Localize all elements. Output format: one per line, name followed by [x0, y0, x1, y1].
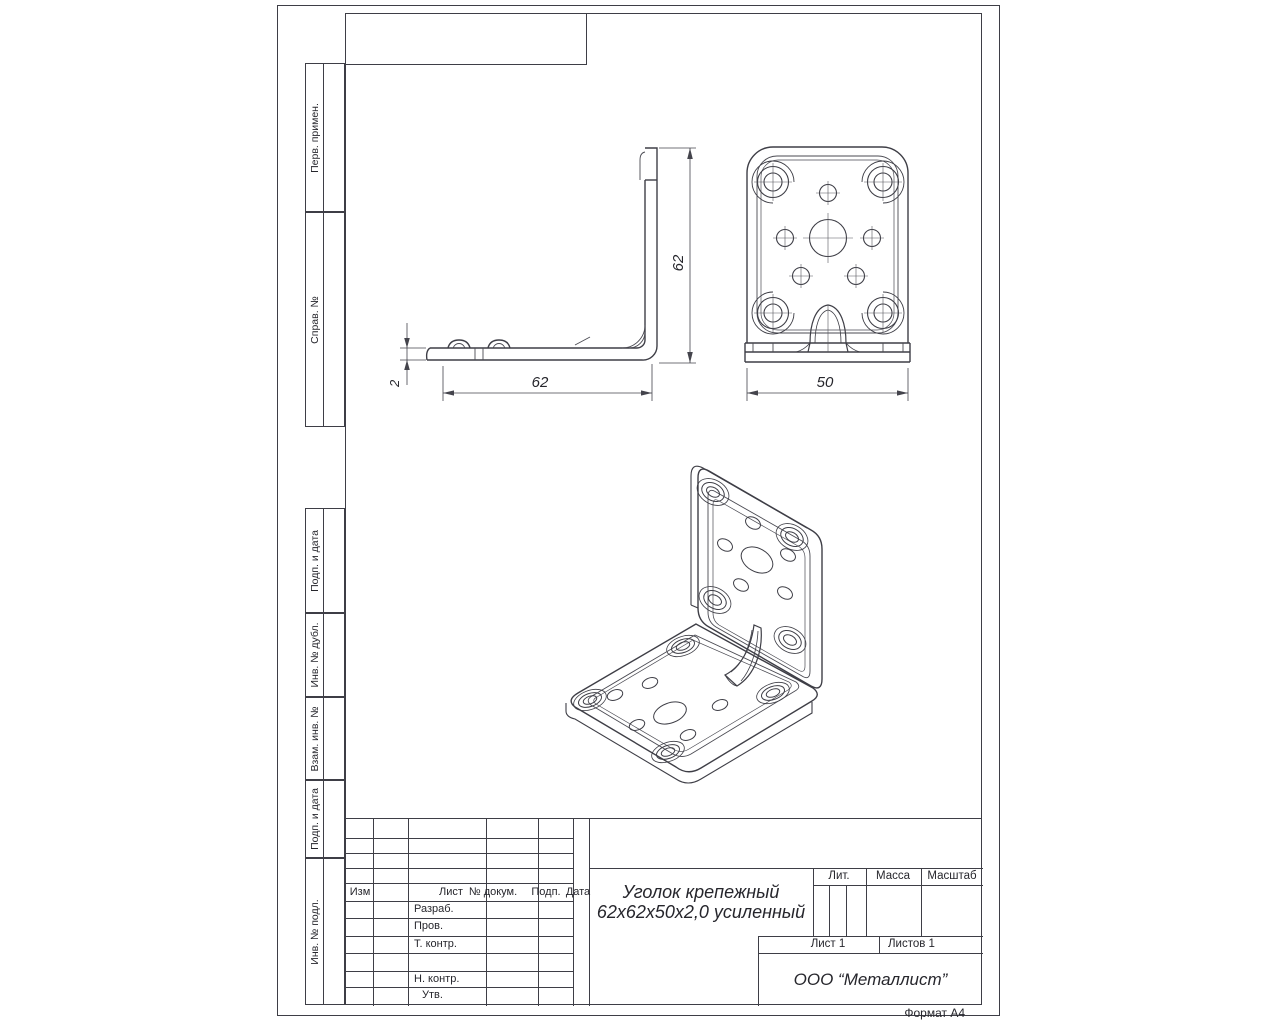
margin-label: Инв. № дубл.: [309, 622, 321, 687]
row-nkontr: Н. контр.: [414, 973, 459, 985]
mass-label: Масса: [876, 870, 910, 882]
format-label: Формат А4: [845, 1006, 965, 1020]
dim-front-width-50: 50: [817, 374, 834, 391]
iso-rib: [725, 625, 761, 686]
iso-vertical-plate: [691, 466, 822, 688]
margin-label: Взам. инв. №: [309, 706, 321, 771]
row-prov: Пров.: [414, 920, 443, 932]
dim-height-62: 62: [670, 254, 687, 271]
margin-label: Подп. и дата: [309, 788, 321, 850]
part-name-line1: Уголок крепежный: [623, 882, 780, 902]
margin-block-vzam-inv: Взам. инв. №: [305, 697, 345, 780]
col-izm: Изм: [350, 886, 371, 898]
margin-block-sprav-no: Справ. №: [305, 212, 345, 427]
scale-label: Масштаб: [927, 870, 976, 882]
margin-label: Перв. примен.: [309, 103, 321, 173]
margin-label: Инв. № подл.: [309, 899, 321, 964]
front-view-drawing: 50: [735, 135, 925, 410]
drawing-sheet-page: Перв. примен. Справ. № Подп. и дата Инв.…: [0, 0, 1280, 1024]
margin-block-podp-data-2: Подп. и дата: [305, 780, 345, 858]
dim-thickness-2: 2: [387, 379, 402, 388]
sheets-total: Листов 1: [888, 938, 935, 950]
side-view-dimension-lines: [400, 148, 696, 401]
col-data: Дата: [566, 886, 590, 898]
lit-label: Лит.: [828, 870, 849, 882]
col-podp: Подп.: [531, 886, 560, 898]
title-block: Изм Лист № докум. Подп. Дата Разраб. Про…: [345, 818, 982, 1005]
col-list: Лист: [439, 886, 463, 898]
side-view-outline: [427, 148, 657, 360]
designation-box: [345, 13, 587, 65]
row-razrab: Разраб.: [414, 903, 454, 915]
side-view-details: [453, 152, 645, 360]
row-utv: Утв.: [422, 989, 443, 1001]
margin-block-perv-primen: Перв. примен.: [305, 63, 345, 212]
pattern-holes: [777, 185, 881, 285]
margin-block-inv-podl: Инв. № подл.: [305, 858, 345, 1005]
margin-block-podp-data-1: Подп. и дата: [305, 508, 345, 613]
margin-label: Справ. №: [309, 296, 321, 344]
part-name: Уголок крепежный 62х62х50х2,0 усиленный: [589, 868, 813, 936]
col-dokum: № докум.: [469, 886, 517, 898]
side-view-drawing: 62 2 62: [390, 135, 710, 410]
rib-front: [796, 305, 860, 352]
company-name: ООО “Металлист”: [758, 953, 983, 1006]
part-name-line2: 62х62х50х2,0 усиленный: [597, 902, 805, 922]
isometric-view-drawing: [545, 445, 850, 800]
sheet-number: Лист 1: [811, 938, 846, 950]
margin-label: Подп. и дата: [309, 530, 321, 592]
margin-block-inv-dubl: Инв. № дубл.: [305, 613, 345, 697]
dim-width-62: 62: [532, 374, 549, 391]
row-tkontr: Т. контр.: [414, 938, 457, 950]
